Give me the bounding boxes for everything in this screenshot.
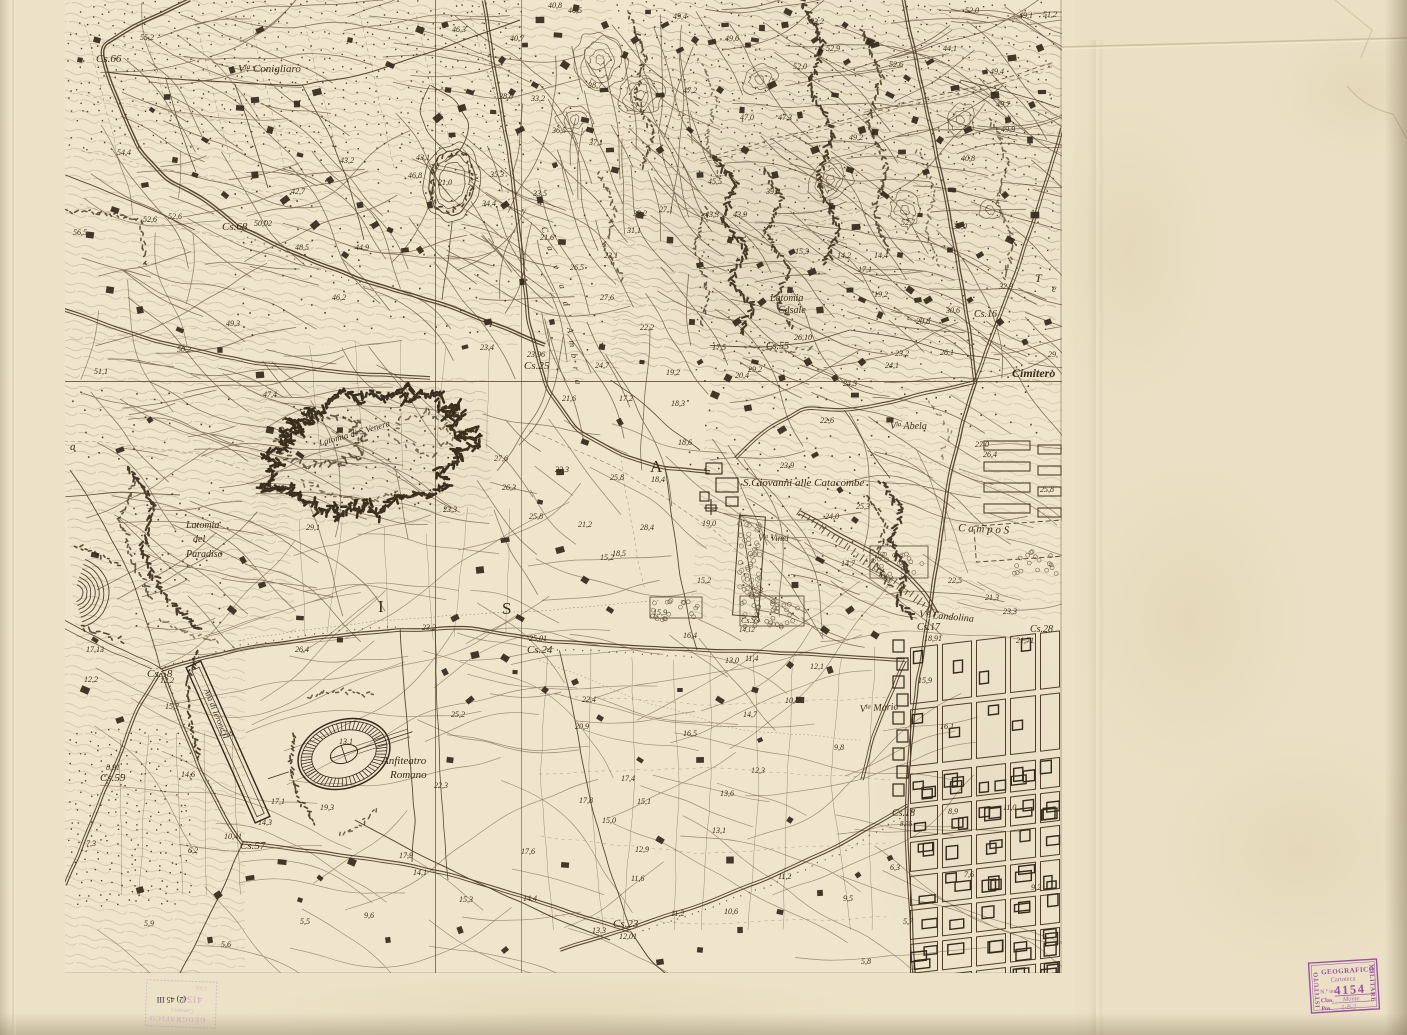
svg-text:16,4: 16,4 bbox=[683, 631, 697, 640]
svg-text:53,2: 53,2 bbox=[810, 17, 824, 26]
svg-text:23,96: 23,96 bbox=[527, 350, 545, 359]
svg-text:8,35: 8,35 bbox=[900, 820, 913, 828]
svg-text:10,6: 10,6 bbox=[724, 907, 738, 916]
svg-text:47,0: 47,0 bbox=[740, 113, 754, 122]
svg-text:23,2: 23,2 bbox=[422, 623, 436, 632]
svg-text:25,8: 25,8 bbox=[529, 512, 543, 521]
svg-text:Latomia: Latomia bbox=[769, 293, 803, 304]
svg-text:23,4: 23,4 bbox=[480, 343, 494, 352]
svg-text:9,2: 9,2 bbox=[1031, 883, 1041, 892]
svg-text:12,1: 12,1 bbox=[810, 662, 824, 671]
svg-text:15,9: 15,9 bbox=[653, 608, 667, 617]
svg-text:12,9: 12,9 bbox=[635, 845, 649, 854]
svg-text:24,0: 24,0 bbox=[825, 512, 839, 521]
svg-text:47,3: 47,3 bbox=[778, 113, 792, 122]
svg-text:21,2: 21,2 bbox=[578, 520, 592, 529]
svg-text:14,3: 14,3 bbox=[258, 818, 272, 827]
svg-text:del: del bbox=[193, 534, 205, 545]
svg-text:19,3: 19,3 bbox=[320, 803, 334, 812]
svg-text:44,1: 44,1 bbox=[943, 44, 957, 53]
svg-text:18,91: 18,91 bbox=[924, 634, 942, 643]
svg-text:26,5: 26,5 bbox=[570, 263, 584, 272]
svg-text:21,0: 21,0 bbox=[438, 178, 452, 187]
svg-text:50,02: 50,02 bbox=[254, 219, 272, 228]
svg-text:47,4: 47,4 bbox=[263, 390, 277, 399]
svg-text:44,9: 44,9 bbox=[355, 243, 369, 252]
svg-text:23,2: 23,2 bbox=[895, 349, 909, 358]
svg-text:5,8: 5,8 bbox=[861, 957, 871, 966]
svg-text:50,2: 50,2 bbox=[177, 345, 191, 354]
svg-text:16,5: 16,5 bbox=[683, 729, 697, 738]
svg-text:15,0: 15,0 bbox=[602, 816, 616, 825]
svg-text:Casale: Casale bbox=[778, 305, 806, 316]
svg-text:49,3: 49,3 bbox=[226, 319, 240, 328]
svg-text:Clas.: Clas. bbox=[194, 984, 207, 990]
svg-text:Cimitero: Cimitero bbox=[1012, 366, 1055, 380]
svg-text:16,1: 16,1 bbox=[940, 722, 954, 731]
svg-text:46,5: 46,5 bbox=[568, 6, 582, 15]
svg-text:20,9: 20,9 bbox=[575, 722, 589, 731]
svg-text:37,1: 37,1 bbox=[588, 138, 603, 147]
svg-text:8,91: 8,91 bbox=[106, 763, 120, 772]
svg-text:43,2: 43,2 bbox=[340, 156, 354, 165]
svg-text:40,7: 40,7 bbox=[510, 34, 525, 43]
svg-text:S.Giovanni alle Catacombe: S.Giovanni alle Catacombe bbox=[743, 477, 864, 489]
svg-text:5,7: 5,7 bbox=[903, 917, 914, 926]
svg-text:6,2: 6,2 bbox=[188, 846, 198, 855]
svg-text:15,2: 15,2 bbox=[697, 576, 711, 585]
svg-text:30,6: 30,6 bbox=[945, 306, 960, 315]
svg-text:18,5: 18,5 bbox=[612, 549, 626, 558]
svg-text:15,7: 15,7 bbox=[165, 702, 180, 711]
svg-text:18,4: 18,4 bbox=[651, 475, 665, 484]
svg-text:Cs.57: Cs.57 bbox=[240, 840, 266, 852]
svg-text:52,7: 52,7 bbox=[901, 218, 916, 227]
svg-text:54,4: 54,4 bbox=[117, 148, 131, 157]
svg-text:45,5: 45,5 bbox=[708, 177, 722, 186]
svg-text:25,8: 25,8 bbox=[610, 473, 624, 482]
svg-text:26,4: 26,4 bbox=[295, 645, 309, 654]
svg-text:29,1: 29,1 bbox=[306, 523, 320, 532]
svg-text:Cs.55: Cs.55 bbox=[766, 341, 789, 352]
svg-text:13,1: 13,1 bbox=[339, 737, 353, 746]
svg-text:Pos.: Pos. bbox=[1321, 1006, 1332, 1013]
svg-text:15,9: 15,9 bbox=[918, 676, 932, 685]
svg-text:6,3: 6,3 bbox=[890, 863, 900, 872]
svg-text:28,4: 28,4 bbox=[640, 523, 654, 532]
svg-text:Cs.25: Cs.25 bbox=[524, 360, 550, 372]
svg-text:25,01: 25,01 bbox=[529, 634, 547, 643]
svg-text:52,6: 52,6 bbox=[143, 215, 157, 224]
svg-text:29,2: 29,2 bbox=[748, 365, 762, 374]
svg-text:13,6: 13,6 bbox=[720, 789, 734, 798]
svg-text:Cs.18: Cs.18 bbox=[892, 808, 915, 819]
svg-text:Vla Vinci: Vla Vinci bbox=[758, 533, 789, 543]
svg-text:25,3: 25,3 bbox=[856, 502, 870, 511]
svg-text:8,9: 8,9 bbox=[948, 807, 958, 816]
svg-text:14,2: 14,2 bbox=[837, 251, 851, 260]
svg-text:21,6: 21,6 bbox=[540, 233, 554, 242]
svg-text:40,8: 40,8 bbox=[548, 1, 562, 10]
svg-text:14,6: 14,6 bbox=[181, 770, 195, 779]
svg-text:Monte: Monte bbox=[1342, 995, 1360, 1003]
svg-text:52,0: 52,0 bbox=[793, 62, 807, 71]
svg-text:34,4: 34,4 bbox=[481, 199, 496, 208]
svg-text:Anfiteatro: Anfiteatro bbox=[381, 755, 427, 767]
svg-text:12,3: 12,3 bbox=[751, 766, 765, 775]
svg-text:25,2: 25,2 bbox=[451, 710, 465, 719]
svg-text:22,3: 22,3 bbox=[434, 781, 448, 790]
svg-text:55,2: 55,2 bbox=[140, 33, 154, 42]
svg-text:Cs.16: Cs.16 bbox=[974, 309, 997, 320]
svg-text:21,3: 21,3 bbox=[985, 593, 999, 602]
svg-text:14,4: 14,4 bbox=[874, 251, 888, 260]
svg-text:52,6: 52,6 bbox=[889, 60, 903, 69]
svg-text:23,1: 23,1 bbox=[604, 251, 618, 260]
svg-text:11,0: 11,0 bbox=[1003, 803, 1016, 812]
svg-text:32,9: 32,9 bbox=[998, 282, 1013, 291]
svg-text:33,2: 33,2 bbox=[632, 209, 647, 218]
svg-text:Cs.28: Cs.28 bbox=[1030, 624, 1053, 635]
svg-text:Cs.53: Cs.53 bbox=[741, 616, 759, 625]
svg-text:43,9: 43,9 bbox=[733, 210, 747, 219]
svg-text:40,8: 40,8 bbox=[961, 154, 975, 163]
svg-text:26,10: 26,10 bbox=[794, 333, 812, 342]
svg-text:17,1: 17,1 bbox=[858, 265, 872, 274]
svg-text:5,5: 5,5 bbox=[300, 917, 310, 926]
svg-text:11,2: 11,2 bbox=[671, 909, 684, 918]
svg-text:39,8: 39,8 bbox=[765, 187, 780, 196]
svg-text:56,5: 56,5 bbox=[73, 228, 87, 237]
svg-text:22,5: 22,5 bbox=[948, 576, 962, 585]
svg-text:Cs.23: Cs.23 bbox=[613, 918, 639, 930]
svg-text:Cs.66: Cs.66 bbox=[96, 53, 122, 65]
svg-text:47,2: 47,2 bbox=[683, 86, 697, 95]
svg-text:Cs.59: Cs.59 bbox=[100, 772, 126, 784]
svg-text:e: e bbox=[1052, 284, 1056, 294]
svg-text:18,6: 18,6 bbox=[678, 438, 692, 447]
svg-text:Cs.17: Cs.17 bbox=[917, 622, 941, 633]
svg-text:9,5: 9,5 bbox=[843, 894, 853, 903]
svg-text:5,9: 5,9 bbox=[144, 919, 154, 928]
svg-text:46,3: 46,3 bbox=[452, 25, 466, 34]
svg-text:21,71: 21,71 bbox=[1016, 636, 1034, 645]
svg-text:17,8: 17,8 bbox=[579, 796, 593, 805]
svg-text:51,2: 51,2 bbox=[1043, 10, 1057, 19]
svg-text:S: S bbox=[502, 599, 511, 618]
svg-text:23,3: 23,3 bbox=[1003, 607, 1017, 616]
svg-text:14,7: 14,7 bbox=[743, 710, 758, 719]
svg-text:26,1: 26,1 bbox=[940, 348, 954, 357]
svg-text:27,6: 27,6 bbox=[494, 454, 508, 463]
svg-text:52,0: 52,0 bbox=[965, 6, 979, 15]
svg-text:22,2: 22,2 bbox=[640, 323, 654, 332]
svg-text:49,4: 49,4 bbox=[673, 12, 687, 21]
svg-text:17,13: 17,13 bbox=[86, 645, 104, 654]
svg-text:11,2: 11,2 bbox=[778, 872, 791, 881]
svg-text:52,9: 52,9 bbox=[826, 44, 840, 53]
svg-text:25,8: 25,8 bbox=[1040, 485, 1054, 494]
svg-text:a: a bbox=[70, 441, 76, 453]
svg-text:19,0: 19,0 bbox=[702, 519, 716, 528]
svg-text:(2) 45 III: (2) 45 III bbox=[156, 995, 186, 1004]
svg-text:11,6: 11,6 bbox=[631, 874, 644, 883]
svg-text:51,1: 51,1 bbox=[94, 367, 108, 376]
svg-text:31,1: 31,1 bbox=[626, 226, 641, 235]
svg-text:43,3: 43,3 bbox=[705, 210, 719, 219]
svg-text:7,6: 7,6 bbox=[964, 870, 974, 879]
svg-text:17,4: 17,4 bbox=[621, 774, 635, 783]
svg-text:36,5: 36,5 bbox=[551, 126, 566, 135]
svg-text:17,8: 17,8 bbox=[219, 729, 233, 738]
svg-text:48,5: 48,5 bbox=[295, 243, 309, 252]
svg-text:15,3: 15,3 bbox=[749, 586, 763, 595]
svg-text:Cartoteca: Cartoteca bbox=[170, 1007, 194, 1014]
svg-text:27,0: 27,0 bbox=[975, 440, 989, 449]
svg-text:14,1: 14,1 bbox=[881, 539, 895, 548]
svg-text:14,1: 14,1 bbox=[413, 868, 427, 877]
svg-text:19,2: 19,2 bbox=[666, 368, 680, 377]
svg-text:Paradiso: Paradiso bbox=[185, 549, 223, 560]
svg-text:35,3: 35,3 bbox=[489, 170, 504, 179]
svg-text:I: I bbox=[378, 597, 384, 616]
svg-text:23,9: 23,9 bbox=[780, 461, 794, 470]
svg-text:19,2: 19,2 bbox=[874, 290, 888, 299]
svg-text:15,1: 15,1 bbox=[637, 797, 651, 806]
svg-text:14,7: 14,7 bbox=[841, 559, 856, 568]
svg-text:24,3: 24,3 bbox=[843, 379, 857, 388]
svg-text:36,0: 36,0 bbox=[952, 222, 967, 231]
svg-text:15,3: 15,3 bbox=[459, 895, 473, 904]
svg-text:12,7: 12,7 bbox=[445, 411, 460, 420]
svg-text:20,8: 20,8 bbox=[916, 317, 930, 326]
svg-text:12,01: 12,01 bbox=[619, 932, 637, 941]
svg-text:14,4: 14,4 bbox=[523, 894, 537, 903]
svg-text:17,6: 17,6 bbox=[521, 847, 535, 856]
svg-text:24,1: 24,1 bbox=[885, 361, 899, 370]
svg-text:Latomia: Latomia bbox=[185, 520, 219, 531]
svg-text:49,6: 49,6 bbox=[725, 34, 739, 43]
svg-text:Cs.24: Cs.24 bbox=[527, 644, 553, 656]
svg-text:29,: 29, bbox=[1048, 350, 1058, 359]
svg-text:46,2: 46,2 bbox=[332, 293, 346, 302]
svg-text:17,1: 17,1 bbox=[271, 797, 285, 806]
svg-text:12,2: 12,2 bbox=[160, 676, 174, 685]
svg-text:9,6: 9,6 bbox=[364, 911, 374, 920]
svg-text:9,8: 9,8 bbox=[834, 743, 844, 752]
svg-text:14,12: 14,12 bbox=[739, 626, 755, 634]
svg-text:46,8: 46,8 bbox=[408, 171, 422, 180]
svg-text:26,3: 26,3 bbox=[502, 483, 516, 492]
svg-text:12,2: 12,2 bbox=[84, 675, 98, 684]
svg-text:13,1: 13,1 bbox=[712, 826, 726, 835]
svg-text:27,1: 27,1 bbox=[659, 205, 673, 214]
svg-text:10,8: 10,8 bbox=[785, 696, 799, 705]
svg-text:22,3: 22,3 bbox=[555, 465, 569, 474]
svg-text:43,1: 43,1 bbox=[416, 153, 430, 162]
svg-text:49,1: 49,1 bbox=[1019, 11, 1033, 20]
svg-text:15,2: 15,2 bbox=[600, 553, 614, 562]
svg-text:52,6: 52,6 bbox=[168, 212, 182, 221]
svg-text:23,3: 23,3 bbox=[443, 505, 457, 514]
svg-text:27,6: 27,6 bbox=[600, 293, 614, 302]
svg-text:21,6: 21,6 bbox=[562, 394, 576, 403]
svg-text:A: A bbox=[650, 457, 663, 476]
svg-text:Cs.68: Cs.68 bbox=[222, 221, 248, 233]
svg-text:11,4: 11,4 bbox=[745, 654, 758, 663]
svg-text:17,5: 17,5 bbox=[712, 343, 726, 352]
svg-text:22,4: 22,4 bbox=[582, 695, 596, 704]
svg-text:42,7: 42,7 bbox=[291, 187, 306, 196]
svg-text:17,9: 17,9 bbox=[399, 851, 413, 860]
svg-text:5,6: 5,6 bbox=[221, 940, 231, 949]
svg-text:15,3: 15,3 bbox=[795, 247, 809, 256]
svg-text:17,2: 17,2 bbox=[619, 394, 633, 403]
svg-text:24,7: 24,7 bbox=[595, 361, 610, 370]
svg-text:49,2: 49,2 bbox=[849, 133, 863, 142]
svg-text:13,0: 13,0 bbox=[725, 656, 739, 665]
svg-text:49,7: 49,7 bbox=[996, 100, 1011, 109]
svg-text:49,4: 49,4 bbox=[990, 67, 1004, 76]
svg-text:33,5: 33,5 bbox=[532, 189, 547, 198]
svg-text:38,8: 38,8 bbox=[498, 92, 513, 101]
svg-text:13,3: 13,3 bbox=[592, 926, 606, 935]
svg-text:Vla Abela: Vla Abela bbox=[890, 421, 927, 432]
svg-text:26,4: 26,4 bbox=[983, 450, 997, 459]
svg-text:20,4: 20,4 bbox=[735, 371, 749, 380]
svg-text:38,7: 38,7 bbox=[587, 81, 603, 90]
svg-text:33,2: 33,2 bbox=[530, 94, 545, 103]
svg-text:Romano: Romano bbox=[389, 769, 427, 781]
svg-text:18,3: 18,3 bbox=[671, 399, 685, 408]
svg-text:49,9: 49,9 bbox=[1001, 125, 1015, 134]
svg-text:7,3: 7,3 bbox=[86, 839, 96, 848]
svg-text:1-B-2: 1-B-2 bbox=[1341, 1003, 1357, 1011]
svg-text:22,6: 22,6 bbox=[820, 416, 834, 425]
